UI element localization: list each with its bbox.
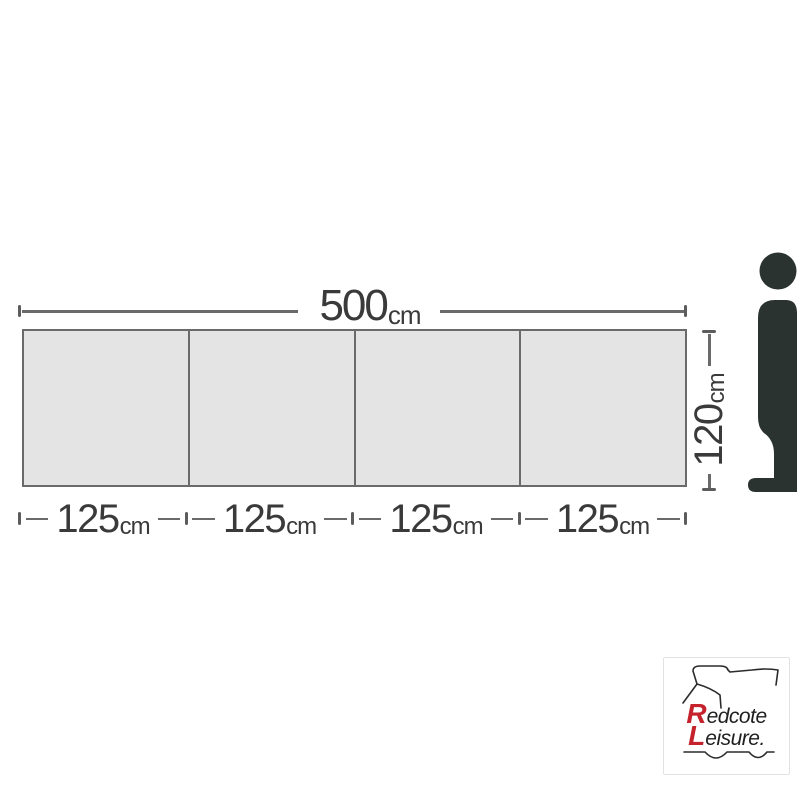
- height-dimension-label: 120cm: [689, 365, 729, 475]
- segment-label-4: 125cm: [556, 499, 649, 539]
- brand-logo: Redcote Leisure.: [663, 657, 790, 775]
- segment-line: [525, 518, 548, 521]
- segment-dimension-4: 125cm: [525, 498, 680, 540]
- windbreak-dimension-diagram: 500cm 120cm 125cm: [0, 0, 800, 800]
- segment-value: 125: [556, 499, 618, 539]
- segment-line: [359, 518, 381, 521]
- dimension-tick: [702, 330, 716, 333]
- dimension-tick: [518, 512, 521, 525]
- dimension-tick: [185, 512, 188, 525]
- segment-line: [491, 518, 513, 521]
- width-dimension-label: 500cm: [297, 284, 443, 328]
- dimension-tick: [702, 488, 716, 491]
- windbreak-panel-group: [22, 329, 687, 487]
- logo-initial-l: L: [688, 722, 705, 750]
- height-dimension-line-bottom: [708, 474, 711, 488]
- segment-line: [657, 518, 680, 521]
- segment-line: [158, 518, 180, 521]
- segment-unit: cm: [619, 515, 649, 539]
- segment-dimension-3: 125cm: [359, 498, 513, 540]
- dimension-tick: [18, 305, 21, 317]
- segment-label-2: 125cm: [223, 499, 316, 539]
- width-unit: cm: [388, 302, 421, 328]
- dimension-tick: [684, 305, 687, 317]
- logo-text-line2: Leisure.: [664, 722, 789, 750]
- segment-label-3: 125cm: [389, 499, 482, 539]
- segment-label-1: 125cm: [56, 499, 149, 539]
- segment-unit: cm: [120, 515, 150, 539]
- segment-value: 125: [389, 499, 451, 539]
- segment-unit: cm: [453, 515, 483, 539]
- width-dimension-line-right: [440, 310, 684, 313]
- dimension-tick: [18, 512, 21, 525]
- height-value: 120: [689, 404, 729, 466]
- segment-line: [26, 518, 48, 521]
- height-unit: cm: [705, 373, 729, 403]
- person-silhouette-icon: [747, 250, 798, 493]
- dimension-tick: [684, 512, 687, 525]
- panel-divider: [519, 331, 521, 485]
- segment-dimension-1: 125cm: [26, 498, 180, 540]
- segment-value: 125: [56, 499, 118, 539]
- width-dimension-line-left: [22, 310, 298, 313]
- segment-value: 125: [223, 499, 285, 539]
- logo-rest-line2: eisure.: [705, 728, 765, 749]
- panel-divider: [188, 331, 190, 485]
- panel-divider: [354, 331, 356, 485]
- dimension-tick: [351, 512, 354, 525]
- width-value: 500: [319, 284, 386, 328]
- segment-unit: cm: [286, 515, 316, 539]
- segment-line: [324, 518, 347, 521]
- height-dimension-line-top: [708, 334, 711, 366]
- segment-line: [192, 518, 215, 521]
- segment-dimension-2: 125cm: [192, 498, 347, 540]
